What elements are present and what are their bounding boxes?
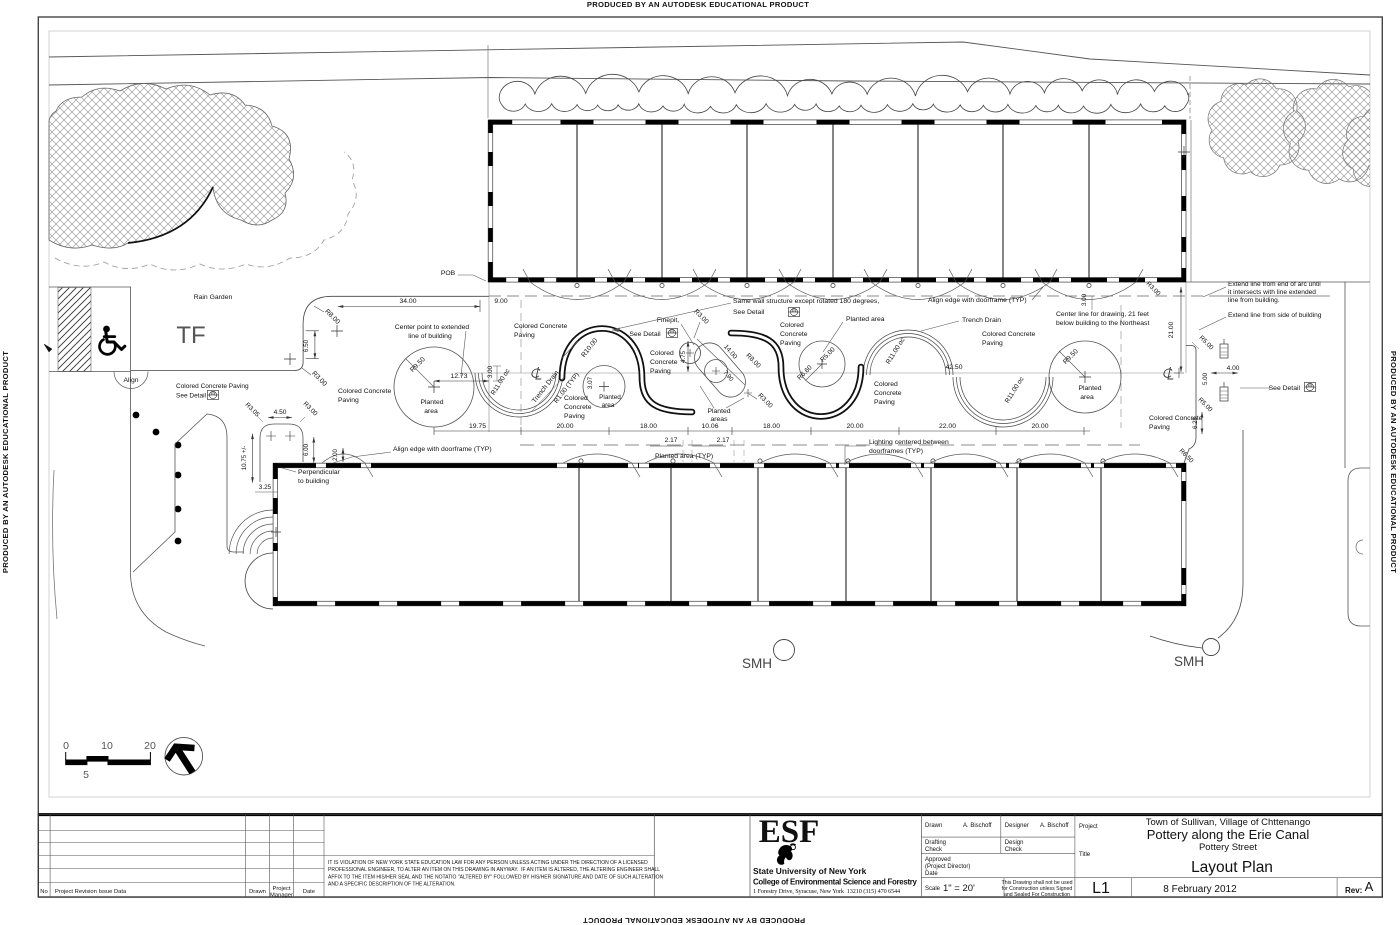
svg-text:TF: TF [176,322,205,349]
svg-text:and Sealed For Construction: and Sealed For Construction [1004,892,1070,898]
svg-text:10: 10 [101,740,113,752]
svg-text:6.00: 6.00 [303,443,310,456]
svg-text:Planted: Planted [420,399,443,406]
svg-text:Drawn: Drawn [249,889,266,895]
svg-text:Trench Drain: Trench Drain [962,317,1001,324]
svg-text:Date: Date [303,889,315,895]
svg-text:18.00: 18.00 [640,423,657,430]
svg-text:Project: Project [272,886,290,892]
svg-text:State University of New York: State University of New York [753,866,867,876]
svg-text:Finepit,: Finepit, [657,317,679,324]
svg-text:Drafting: Drafting [925,840,946,846]
svg-text:Extend line from side of build: Extend line from side of building [1228,312,1322,319]
svg-text:Drawn: Drawn [925,823,942,829]
svg-text:L1: L1 [1092,880,1110,897]
svg-text:Colored: Colored [564,395,588,402]
svg-text:Colored: Colored [650,350,674,357]
svg-text:College of Environmental Scien: College of Environmental Science and For… [753,878,918,887]
svg-text:9.00: 9.00 [494,298,507,305]
svg-text:Paving: Paving [780,340,801,347]
svg-text:Same wall structure except rot: Same wall structure except rotated 180 d… [733,298,879,305]
svg-text:AFFIX TO THE ITEM HIS/HER SEAL: AFFIX TO THE ITEM HIS/HER SEAL AND THE N… [328,874,663,880]
svg-text:PRODUCED BY AN AUTODESK EDUCAT: PRODUCED BY AN AUTODESK EDUCATIONAL PROD… [587,0,809,9]
svg-text:5: 5 [83,769,89,781]
svg-text:3.00: 3.00 [1081,293,1088,306]
svg-text:See Detail: See Detail [629,331,661,338]
svg-text:Design: Design [1005,840,1024,846]
svg-text:Planted: Planted [599,394,621,401]
svg-text:42.50: 42.50 [945,364,962,371]
svg-text:Center line for drawing, 21 fe: Center line for drawing, 21 feet [1056,311,1149,318]
svg-text:6.50: 6.50 [303,339,310,352]
svg-text:2.17: 2.17 [717,437,730,444]
svg-text:See Detail: See Detail [176,393,207,400]
svg-text:19.75: 19.75 [469,423,486,430]
svg-text:PROFESSIONAL ENGINEER, TO ALTE: PROFESSIONAL ENGINEER, TO ALTER AN ITEM … [328,867,660,873]
svg-text:4.00: 4.00 [1227,365,1240,372]
svg-text:Rev:: Rev: [1345,886,1362,895]
svg-text:3.00: 3.00 [487,365,494,378]
svg-text:6.25: 6.25 [1192,416,1199,429]
svg-text:See Detail: See Detail [733,309,765,316]
svg-text:Planted area: Planted area [846,316,885,323]
svg-text:doorframes (TYP): doorframes (TYP) [869,448,923,455]
svg-text:4.75: 4.75 [680,350,687,363]
svg-text:Project Revision Issue Data: Project Revision Issue Data [55,889,127,895]
svg-text:ESF: ESF [759,814,820,850]
svg-text:area: area [424,408,438,415]
svg-text:PRODUCED BY AN AUTODESK EDUCAT: PRODUCED BY AN AUTODESK EDUCATIONAL PROD… [583,916,805,925]
svg-text:18.00: 18.00 [763,423,780,430]
svg-text:12.73: 12.73 [450,373,467,380]
svg-text:No: No [40,889,47,895]
svg-text:20.00: 20.00 [846,423,863,430]
svg-text:AND A SPECIFIC DESCRIPTION OF: AND A SPECIFIC DESCRIPTION OF THE ALTERA… [328,882,456,888]
svg-text:Colored: Colored [780,322,804,329]
svg-text:Designer: Designer [1005,823,1029,829]
svg-text:1" = 20': 1" = 20' [943,883,975,894]
svg-text:POB: POB [441,270,456,277]
svg-text:Planted: Planted [707,408,730,415]
svg-text:A. Bischoff: A. Bischoff [963,823,992,829]
svg-text:PRODUCED BY AN AUTODESK EDUCAT: PRODUCED BY AN AUTODESK EDUCATIONAL PROD… [1389,351,1398,573]
svg-text:Pottery along the Erie Canal: Pottery along the Erie Canal [1147,827,1310,842]
svg-text:22.00: 22.00 [939,423,956,430]
svg-text:Paving: Paving [982,340,1003,347]
svg-text:Concrete: Concrete [564,404,592,411]
svg-text:Paving: Paving [564,413,585,420]
svg-text:PRODUCED BY AN AUTODESK EDUCAT: PRODUCED BY AN AUTODESK EDUCATIONAL PROD… [1,351,10,573]
svg-text:10.75 +/-: 10.75 +/- [241,446,248,471]
svg-text:20.00: 20.00 [556,423,573,430]
svg-text:5.00: 5.00 [1202,372,1209,385]
svg-text:See Detail: See Detail [1269,385,1301,392]
svg-text:3.25: 3.25 [259,484,272,491]
svg-text:1 Forestry Drive, Syracuse, Ne: 1 Forestry Drive, Syracuse, New York 132… [753,888,900,895]
svg-text:0: 0 [63,740,69,752]
svg-text:Paving: Paving [338,397,359,404]
svg-text:Project: Project [1079,824,1098,830]
svg-text:Layout Plan: Layout Plan [1191,859,1273,876]
svg-text:line of building: line of building [408,333,452,340]
svg-text:A: A [1365,879,1374,894]
svg-text:Paving: Paving [514,332,535,339]
svg-text:Colored Concrete: Colored Concrete [514,323,567,330]
svg-text:(Project Director): (Project Director) [925,864,970,870]
svg-text:3.07: 3.07 [587,376,594,389]
svg-text:Align: Align [123,377,138,384]
svg-text:20.00: 20.00 [1031,423,1048,430]
svg-text:Planted: Planted [1078,385,1101,392]
svg-text:10.06: 10.06 [701,423,718,430]
svg-text:Colored Concrete: Colored Concrete [982,331,1035,338]
svg-text:IT IS VIOLATION OF NEW YORK ST: IT IS VIOLATION OF NEW YORK STATE EDUCAT… [328,860,648,866]
svg-text:Lighting centered between: Lighting centered between [869,439,949,446]
svg-text:Scale: Scale [925,886,941,892]
svg-text:Paving: Paving [874,399,895,406]
svg-text:Concrete: Concrete [874,390,902,397]
svg-text:below building to the Northeas: below building to the Northeast [1056,320,1149,327]
svg-text:34.00: 34.00 [399,298,416,305]
svg-text:2.00: 2.00 [333,449,339,461]
svg-text:Planted area (TYP): Planted area (TYP) [655,453,713,460]
svg-text:Align edge with doorframe (TYP: Align edge with doorframe (TYP) [393,446,492,453]
svg-text:Paving: Paving [1149,424,1170,431]
svg-text:Colored: Colored [874,381,898,388]
svg-text:Paving: Paving [650,368,671,375]
svg-text:Colored Concrete Paving: Colored Concrete Paving [176,383,249,390]
svg-text:Concrete: Concrete [650,359,678,366]
svg-text:Colored Concrete: Colored Concrete [338,388,391,395]
svg-text:it intersects with line extend: it intersects with line extended [1228,289,1316,296]
svg-text:4.50: 4.50 [274,409,287,416]
svg-text:Check: Check [925,847,943,853]
svg-text:Rain Garden: Rain Garden [194,294,233,301]
svg-text:21.00: 21.00 [1168,321,1175,338]
svg-text:A. Bischoff: A. Bischoff [1040,823,1069,829]
svg-text:Perpendicular: Perpendicular [298,469,341,476]
svg-text:Title: Title [1079,852,1091,858]
svg-text:Pottery Street: Pottery Street [1199,842,1257,853]
svg-text:Center point to extended: Center point to extended [395,324,470,331]
svg-text:area: area [1080,394,1094,401]
svg-text:SMH: SMH [742,656,772,671]
svg-text:20: 20 [144,740,156,752]
svg-text:SMH: SMH [1174,654,1204,669]
svg-text:2.17: 2.17 [665,437,678,444]
svg-text:Concrete: Concrete [780,331,808,338]
svg-text:Date: Date [925,871,938,877]
svg-text:8 February 2012: 8 February 2012 [1163,884,1237,895]
svg-text:areas: areas [710,416,728,423]
svg-text:area: area [602,402,615,409]
svg-text:to building: to building [298,478,329,485]
svg-text:line from building.: line from building. [1228,297,1280,304]
svg-text:Approved: Approved [925,857,951,863]
svg-text:Align edge with doorframe (TYP: Align edge with doorframe (TYP) [928,297,1027,304]
svg-text:Check: Check [1005,847,1023,853]
svg-text:Manager: Manager [270,892,293,898]
